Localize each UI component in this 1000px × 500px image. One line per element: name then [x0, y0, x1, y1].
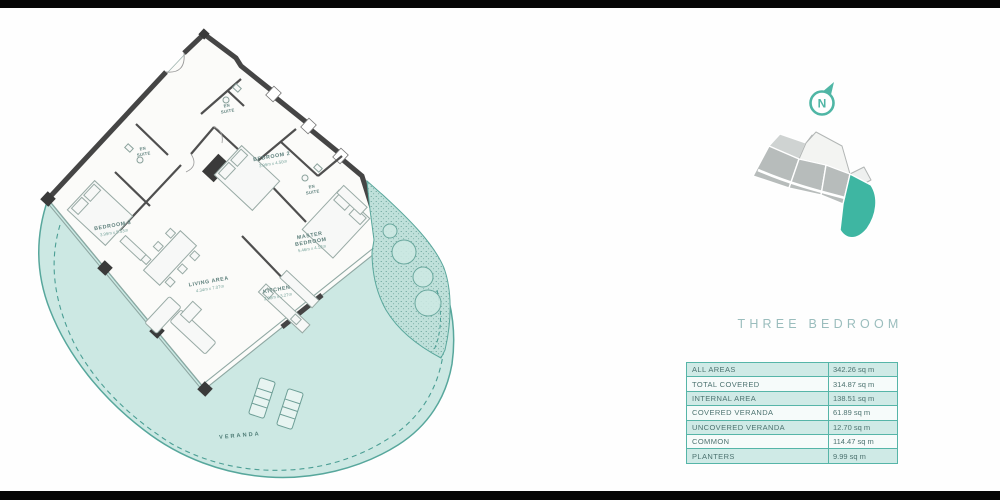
table-row: ALL AREAS 342.26 sq m [686, 362, 898, 377]
table-row: TOTAL COVERED 314.87 sq m [686, 376, 898, 391]
bush-icon [413, 267, 433, 287]
table-row-label: PLANTERS [687, 449, 828, 462]
table-row-value: 9.99 sq m [828, 449, 897, 462]
bush-icon [392, 240, 416, 264]
table-row-value: 61.89 sq m [828, 406, 897, 419]
table-row-label: COMMON [687, 435, 828, 448]
table-row-label: COVERED VERANDA [687, 406, 828, 419]
bush-icon [415, 290, 441, 316]
building-key-plan [753, 132, 876, 238]
table-row: COVERED VERANDA 61.89 sq m [686, 405, 898, 420]
table-row-value: 342.26 sq m [828, 363, 897, 376]
svg-text:N: N [818, 97, 827, 111]
table-row: INTERNAL AREA 138.51 sq m [686, 391, 898, 406]
table-row-label: ALL AREAS [687, 363, 828, 376]
table-row-label: INTERNAL AREA [687, 392, 828, 405]
table-row-label: UNCOVERED VERANDA [687, 421, 828, 434]
table-row-value: 138.51 sq m [828, 392, 897, 405]
table-row: UNCOVERED VERANDA 12.70 sq m [686, 420, 898, 435]
table-row-value: 314.87 sq m [828, 377, 897, 390]
table-row-label: TOTAL COVERED [687, 377, 828, 390]
north-compass-icon: N [811, 82, 835, 115]
floor-plan-sheet: VERANDA [0, 0, 1000, 500]
table-row: COMMON 114.47 sq m [686, 434, 898, 449]
unit-type-title: THREE BEDROOM [700, 317, 940, 331]
area-table: ALL AREAS 342.26 sq m TOTAL COVERED 314.… [686, 363, 898, 464]
bush-icon [383, 224, 397, 238]
table-row: PLANTERS 9.99 sq m [686, 448, 898, 463]
table-row-value: 12.70 sq m [828, 421, 897, 434]
table-row-value: 114.47 sq m [828, 435, 897, 448]
